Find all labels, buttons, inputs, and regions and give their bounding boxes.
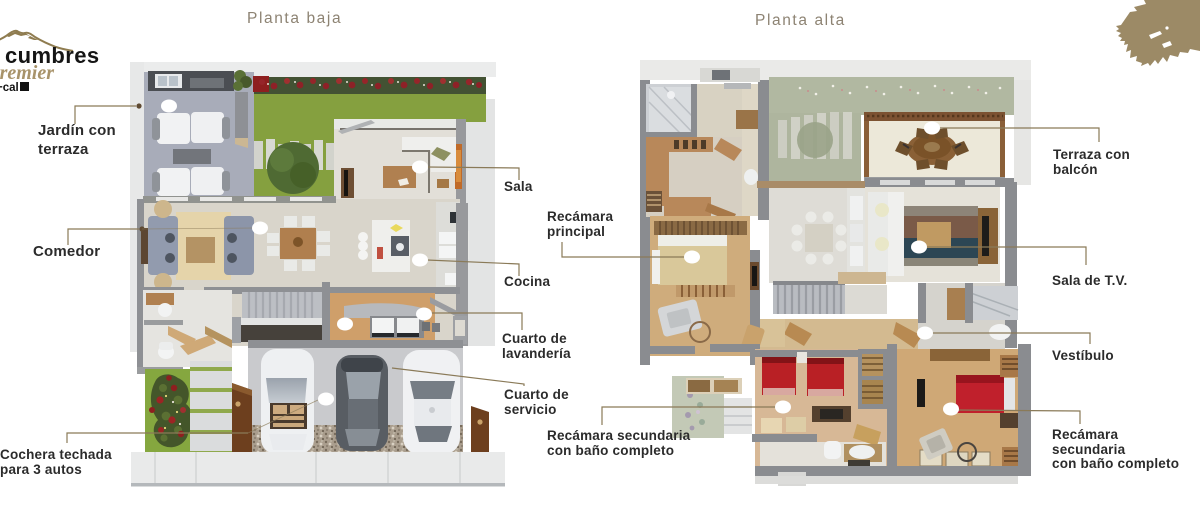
svg-text:premier: premier bbox=[0, 62, 54, 84]
svg-text:+cal: +cal bbox=[0, 82, 19, 94]
